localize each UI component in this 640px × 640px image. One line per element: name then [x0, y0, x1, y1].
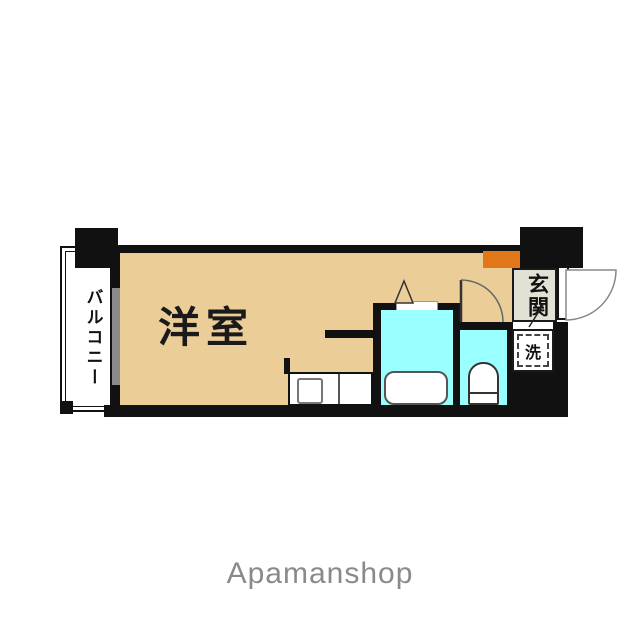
washer-dashed-outline: 洗	[517, 334, 549, 367]
floorplan-page: { "floorplan": { "title": "studio apartm…	[0, 0, 640, 640]
toilet-seat-line	[469, 392, 498, 394]
toilet	[468, 362, 499, 405]
pillar-top-right	[520, 227, 583, 268]
pillar-bottom-left	[60, 401, 73, 414]
floorplan-canvas: バルコニー 玄関 洗 洋室	[0, 0, 640, 640]
wall-bath-toilet	[453, 303, 460, 405]
washer-space: 洗	[512, 329, 554, 372]
kitchen-sink	[297, 378, 323, 404]
bathtub	[384, 371, 448, 405]
entrance-label: 玄関	[524, 271, 550, 320]
entrance-door-leaf	[557, 266, 569, 320]
wall-right-mid	[553, 322, 568, 372]
washer-label: 洗	[525, 339, 541, 363]
kitchen-counter-divider	[338, 374, 340, 404]
wall-fill-bottom-right	[507, 372, 568, 405]
brand-text: Apamanshop	[0, 557, 640, 591]
entrance-door-arc	[566, 270, 616, 320]
living-room-label: 洋室	[158, 294, 254, 355]
accent-strip	[483, 251, 520, 268]
balcony-window	[112, 288, 120, 385]
wall-top	[112, 245, 522, 253]
wall-bottom	[104, 405, 568, 417]
wall-toilet-top	[453, 322, 513, 330]
balcony-label: バルコニー	[82, 272, 104, 404]
wall-bath-left	[373, 303, 381, 405]
wall-partition-mid	[325, 330, 373, 338]
